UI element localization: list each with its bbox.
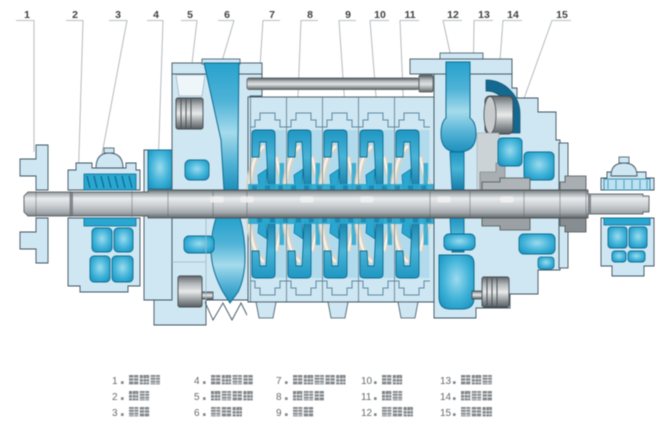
svg-text:15: 15 (556, 9, 568, 21)
svg-text:10: 10 (374, 9, 386, 21)
svg-text:4: 4 (153, 9, 159, 21)
svg-text:14: 14 (440, 392, 452, 403)
svg-text:13: 13 (440, 376, 452, 387)
svg-text:6: 6 (194, 408, 200, 419)
svg-text:13: 13 (478, 9, 490, 21)
svg-text:1: 1 (112, 376, 118, 387)
svg-text:11: 11 (361, 392, 372, 403)
svg-text:7: 7 (276, 376, 282, 387)
svg-text:9: 9 (276, 408, 282, 419)
svg-text:3: 3 (115, 9, 121, 21)
svg-text:3: 3 (112, 408, 118, 419)
svg-text:8: 8 (307, 9, 313, 21)
svg-text:6: 6 (224, 9, 230, 21)
svg-text:15: 15 (440, 408, 452, 419)
svg-text:2: 2 (112, 392, 118, 403)
svg-text:12: 12 (361, 408, 373, 419)
svg-text:12: 12 (447, 9, 459, 21)
svg-text:9: 9 (345, 9, 351, 21)
svg-text:5: 5 (194, 392, 200, 403)
svg-text:7: 7 (269, 9, 275, 21)
svg-text:8: 8 (276, 392, 282, 403)
svg-text:4: 4 (194, 376, 200, 387)
svg-text:1: 1 (24, 9, 30, 21)
svg-text:10: 10 (361, 376, 373, 387)
svg-text:5: 5 (187, 9, 193, 21)
svg-text:14: 14 (507, 9, 519, 21)
svg-text:11: 11 (404, 9, 415, 21)
svg-text:2: 2 (72, 9, 78, 21)
